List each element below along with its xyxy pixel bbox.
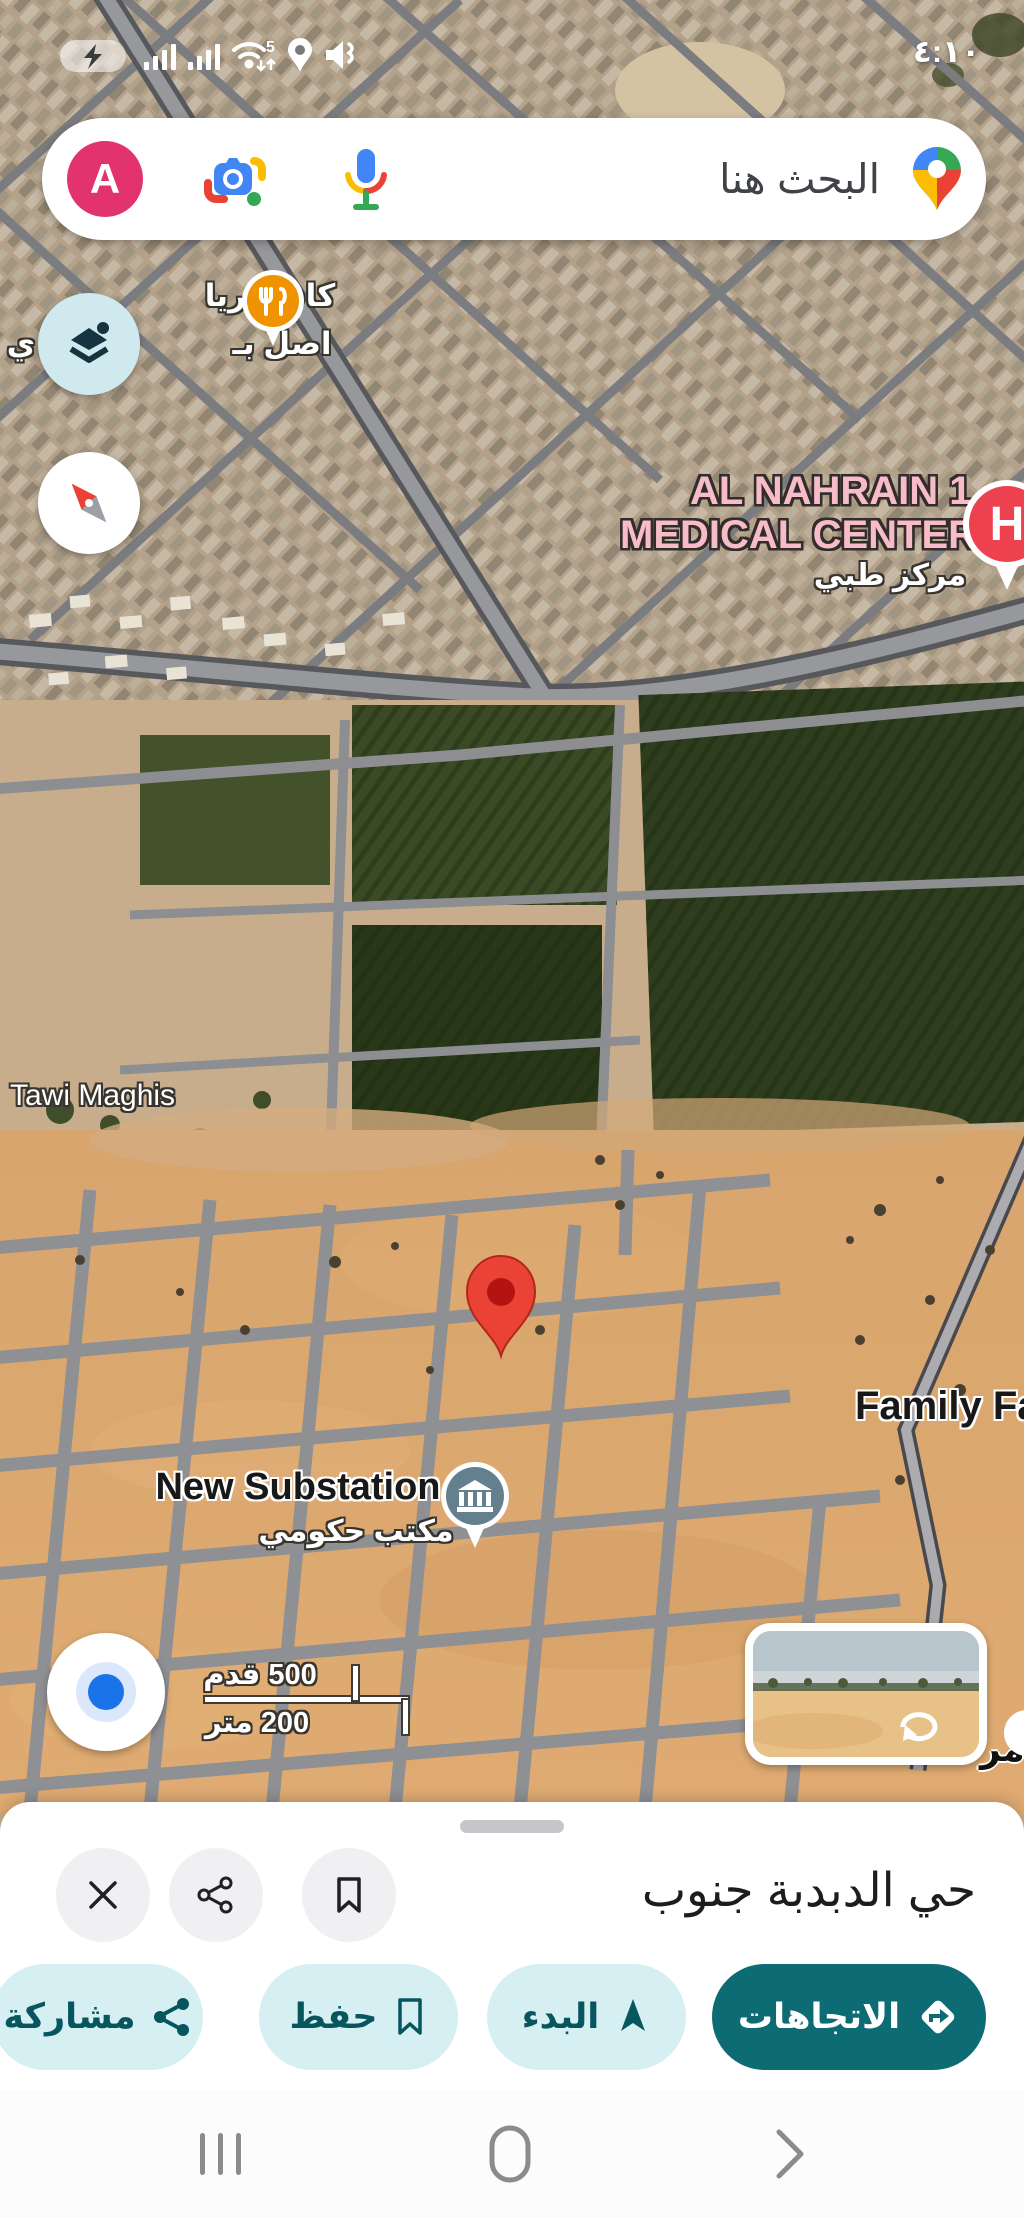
close-button[interactable] bbox=[56, 1848, 150, 1942]
directions-icon bbox=[916, 1995, 960, 2039]
share-place-label: مشاركة bbox=[3, 1997, 135, 2037]
share-place-button[interactable]: مشاركة bbox=[0, 1964, 203, 2070]
save-button[interactable]: حفظ bbox=[259, 1964, 458, 2070]
restaurant-icon bbox=[240, 268, 306, 350]
google-maps-pin-icon bbox=[908, 146, 966, 212]
place-title: حي الدبدبة جنوب bbox=[642, 1862, 976, 1918]
compass-button[interactable] bbox=[38, 452, 140, 554]
gov-office-poi-pin[interactable] bbox=[438, 1460, 512, 1552]
scale-tick-meters bbox=[403, 1700, 408, 1734]
svg-text:5: 5 bbox=[266, 39, 275, 56]
medical-center-label-line1: AL NAHRAIN 1 bbox=[690, 470, 970, 512]
back-button[interactable] bbox=[755, 2090, 825, 2218]
signal-strength-icon bbox=[142, 42, 178, 72]
search-bar[interactable]: A البحث هنا bbox=[42, 118, 986, 240]
clock: ٤:١٠ bbox=[913, 34, 980, 70]
save-bookmark-icon bbox=[393, 1997, 427, 2037]
gov-office-label: مكتب حكومي bbox=[258, 1516, 454, 1548]
hospital-poi-pin[interactable]: H bbox=[962, 478, 1024, 594]
directions-button[interactable]: الاتجاهات bbox=[712, 1964, 986, 2070]
poi-label-cafeteria-tail: ي bbox=[4, 328, 38, 361]
battery-charging-icon bbox=[60, 38, 130, 74]
scale-feet-label: 500 قدم bbox=[195, 1660, 325, 1690]
new-substation-label: New Substation bbox=[148, 1468, 448, 1508]
my-location-button[interactable] bbox=[47, 1633, 165, 1751]
medical-center-label-line2: MEDICAL CENTER... bbox=[620, 514, 970, 556]
restaurant-poi-pin[interactable] bbox=[240, 268, 306, 350]
compass-needle-icon bbox=[59, 473, 119, 533]
gov-building-icon bbox=[438, 1460, 512, 1552]
scale-tick-feet bbox=[353, 1666, 358, 1700]
directions-label: الاتجاهات bbox=[738, 1997, 900, 2037]
tawi-maghis-label: Tawi Maghis bbox=[10, 1080, 175, 1112]
my-location-icon bbox=[71, 1657, 141, 1727]
medical-center-sublabel: مركز طبي bbox=[800, 560, 980, 592]
start-navigation-button[interactable]: البدء bbox=[487, 1964, 686, 2070]
lens-button[interactable] bbox=[204, 149, 266, 211]
voice-search-button[interactable] bbox=[334, 145, 398, 215]
recents-button[interactable] bbox=[186, 2090, 256, 2218]
search-placeholder[interactable]: البحث هنا bbox=[719, 118, 880, 240]
home-button[interactable] bbox=[475, 2090, 545, 2218]
satellite-imagery bbox=[0, 0, 1024, 1815]
status-bar: 5 ٤:١٠ bbox=[0, 0, 1024, 92]
scale-meters-label: 200 متر bbox=[192, 1708, 322, 1738]
hospital-letter: H bbox=[990, 498, 1024, 551]
account-avatar[interactable]: A bbox=[67, 141, 143, 217]
share-filled-icon bbox=[152, 1997, 192, 2037]
google-lens-icon bbox=[204, 149, 266, 211]
destination-pin[interactable] bbox=[455, 1248, 547, 1360]
street-view-thumbnail[interactable] bbox=[745, 1623, 987, 1765]
google-maps-app: كافيتيريا اصل بـ ي AL NAHRAIN 1 MEDICAL … bbox=[0, 0, 1024, 2218]
home-icon bbox=[488, 2124, 532, 2184]
save-label: حفظ bbox=[290, 1997, 378, 2037]
navigation-icon bbox=[615, 1997, 651, 2037]
recents-icon bbox=[196, 2131, 246, 2177]
android-navigation-bar bbox=[0, 2090, 1024, 2218]
sound-muted-icon bbox=[324, 38, 364, 72]
layers-icon bbox=[61, 316, 117, 372]
bookmark-button[interactable] bbox=[302, 1848, 396, 1942]
wifi-5g-icon: 5 bbox=[230, 36, 276, 76]
share-button[interactable] bbox=[169, 1848, 263, 1942]
signal-strength-2-icon bbox=[186, 42, 222, 72]
family-farm-label: Family Farm bbox=[855, 1385, 1024, 1427]
back-chevron-icon bbox=[773, 2128, 807, 2180]
place-bottom-sheet[interactable]: حي الدبدبة جنوب bbox=[0, 1802, 1024, 2090]
microphone-icon bbox=[334, 145, 398, 215]
avatar-letter: A bbox=[90, 155, 120, 203]
location-active-icon bbox=[286, 38, 314, 74]
map-canvas[interactable]: كافيتيريا اصل بـ ي AL NAHRAIN 1 MEDICAL … bbox=[0, 0, 1024, 1815]
start-label: البدء bbox=[522, 1997, 600, 2037]
red-pin-icon bbox=[455, 1248, 547, 1360]
sheet-drag-handle[interactable] bbox=[460, 1820, 564, 1833]
scale-line bbox=[205, 1697, 408, 1702]
bookmark-icon bbox=[331, 1875, 367, 1915]
maps-logo-pin bbox=[908, 146, 966, 212]
close-icon bbox=[85, 1877, 121, 1913]
layers-button[interactable] bbox=[38, 293, 140, 395]
share-icon bbox=[196, 1875, 236, 1915]
